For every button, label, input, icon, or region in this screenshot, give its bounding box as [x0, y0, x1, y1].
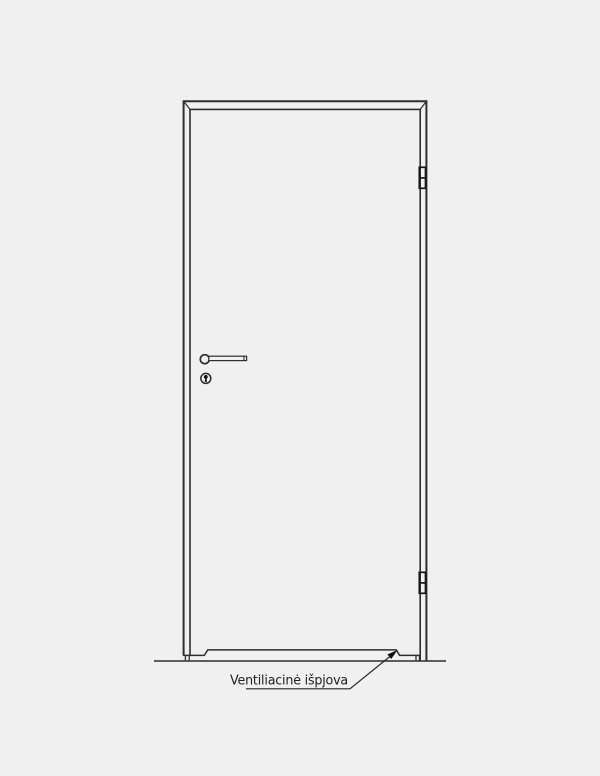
ventilation-cutout — [183, 650, 420, 656]
frame-feet — [185, 656, 419, 661]
door-frame — [184, 101, 427, 660]
drawing-canvas: Ventiliacinė išpjova — [0, 0, 600, 776]
frame-outer-contour — [184, 101, 427, 660]
door-handle — [200, 355, 246, 384]
cutout-label: Ventiliacinė išpjova — [230, 674, 348, 689]
door-leaf — [183, 650, 420, 656]
frame-inner-contour — [190, 109, 420, 660]
lever-handle — [209, 356, 247, 360]
door-technical-drawing: Ventiliacinė išpjova — [0, 0, 600, 776]
handle-rosette — [200, 355, 209, 364]
